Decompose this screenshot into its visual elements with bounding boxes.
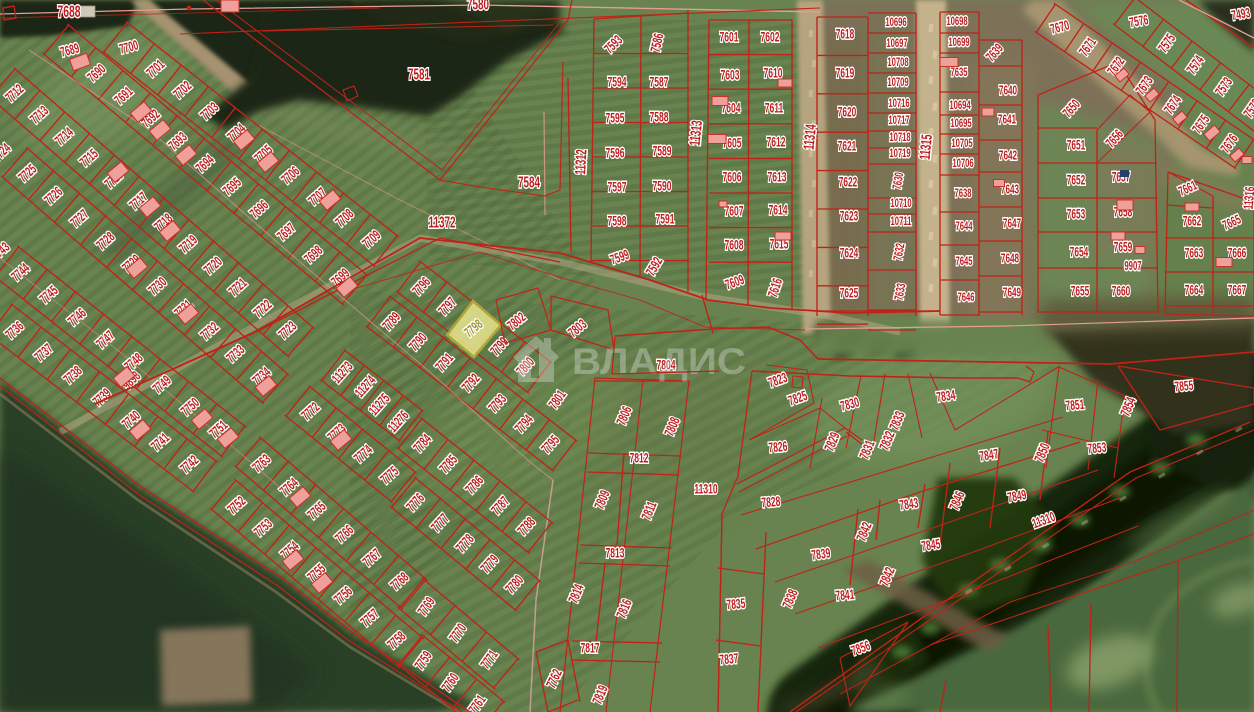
svg-text:7843: 7843 [899, 497, 920, 514]
svg-text:7839: 7839 [811, 547, 832, 564]
svg-text:7667: 7667 [1228, 284, 1246, 298]
svg-text:7855: 7855 [1174, 379, 1195, 395]
svg-text:10719: 10719 [889, 147, 911, 160]
svg-text:7623: 7623 [840, 210, 858, 224]
svg-text:7614: 7614 [768, 204, 787, 218]
svg-text:7641: 7641 [998, 113, 1016, 127]
svg-text:7660: 7660 [1112, 285, 1130, 299]
svg-text:10717: 10717 [888, 114, 910, 127]
svg-text:7847: 7847 [979, 448, 1000, 465]
svg-text:7646: 7646 [957, 291, 974, 304]
svg-text:7584: 7584 [518, 173, 540, 191]
svg-text:7835: 7835 [726, 597, 747, 613]
svg-text:7662: 7662 [1183, 215, 1201, 229]
svg-text:7653: 7653 [1067, 208, 1085, 222]
svg-text:10716: 10716 [888, 97, 910, 110]
svg-text:7826: 7826 [768, 440, 788, 456]
svg-text:10718: 10718 [889, 131, 911, 144]
svg-text:10694: 10694 [949, 99, 971, 112]
svg-text:7659: 7659 [1114, 241, 1132, 255]
svg-text:7638: 7638 [954, 187, 971, 200]
svg-text:7594: 7594 [607, 76, 626, 90]
svg-text:7845: 7845 [921, 537, 942, 554]
svg-text:10698: 10698 [946, 15, 968, 28]
svg-text:7652: 7652 [1067, 174, 1085, 188]
svg-text:7654: 7654 [1070, 246, 1089, 260]
svg-text:10708: 10708 [887, 56, 909, 69]
svg-text:10696: 10696 [885, 16, 907, 29]
svg-text:7611: 7611 [765, 102, 784, 116]
svg-text:7619: 7619 [836, 67, 854, 81]
svg-text:7651: 7651 [1067, 139, 1085, 153]
svg-text:11315: 11315 [916, 133, 935, 160]
svg-text:7851: 7851 [1065, 398, 1086, 414]
svg-text:7590: 7590 [652, 180, 671, 194]
svg-text:7612: 7612 [766, 136, 785, 150]
svg-text:7624: 7624 [840, 247, 859, 261]
svg-text:7621: 7621 [838, 140, 856, 154]
svg-text:10710: 10710 [890, 197, 912, 210]
svg-text:7587: 7587 [649, 76, 668, 90]
svg-text:7853: 7853 [1087, 441, 1107, 457]
svg-text:7601: 7601 [719, 31, 738, 45]
svg-text:7812: 7812 [629, 452, 648, 466]
svg-text:7591: 7591 [655, 213, 674, 227]
svg-text:7598: 7598 [607, 215, 626, 229]
svg-text:7648: 7648 [1001, 252, 1019, 266]
svg-text:7618: 7618 [836, 28, 854, 42]
svg-text:ВЛАДИС: ВЛАДИС [572, 341, 746, 382]
svg-text:7817: 7817 [580, 642, 599, 656]
svg-text:9907: 9907 [1124, 260, 1141, 273]
svg-text:10711: 10711 [891, 215, 912, 228]
svg-text:7625: 7625 [840, 287, 858, 301]
svg-text:10705: 10705 [951, 137, 973, 150]
svg-text:7663: 7663 [1185, 247, 1203, 261]
svg-text:7642: 7642 [999, 149, 1017, 163]
svg-text:7688: 7688 [57, 1, 80, 20]
svg-text:7841: 7841 [835, 588, 856, 604]
svg-text:7640: 7640 [999, 84, 1017, 98]
svg-text:11314: 11314 [800, 123, 819, 150]
svg-text:7595: 7595 [605, 112, 624, 126]
svg-text:7644: 7644 [955, 220, 972, 233]
svg-text:10709: 10709 [887, 76, 909, 89]
svg-text:11316: 11316 [1242, 186, 1254, 210]
svg-text:7620: 7620 [838, 106, 856, 120]
svg-text:11372: 11372 [428, 213, 455, 231]
svg-text:10706: 10706 [952, 157, 974, 170]
svg-text:11312: 11312 [572, 149, 590, 175]
svg-text:7608: 7608 [724, 239, 743, 253]
svg-text:7813: 7813 [605, 547, 624, 561]
svg-text:7596: 7596 [605, 147, 624, 161]
svg-text:10697: 10697 [886, 37, 908, 50]
svg-text:10699: 10699 [948, 36, 970, 49]
svg-text:7580: 7580 [467, 0, 489, 13]
svg-text:7606: 7606 [722, 171, 741, 185]
svg-text:10695: 10695 [950, 117, 972, 130]
svg-text:7828: 7828 [761, 495, 782, 511]
svg-text:7613: 7613 [767, 171, 786, 185]
svg-text:11310: 11310 [694, 483, 717, 497]
svg-text:7645: 7645 [955, 255, 972, 268]
svg-text:7664: 7664 [1185, 284, 1204, 298]
svg-text:7581: 7581 [408, 65, 430, 83]
svg-text:7655: 7655 [1071, 285, 1089, 299]
svg-text:7837: 7837 [719, 652, 739, 668]
svg-text:7834: 7834 [936, 388, 957, 405]
svg-text:11313: 11313 [686, 119, 705, 146]
svg-text:7649: 7649 [1003, 286, 1021, 300]
svg-text:7589: 7589 [652, 145, 671, 159]
svg-text:7622: 7622 [839, 176, 857, 190]
svg-text:7597: 7597 [607, 181, 626, 195]
svg-text:7602: 7602 [760, 31, 779, 45]
svg-text:7588: 7588 [649, 111, 668, 125]
svg-text:7603: 7603 [720, 69, 739, 83]
svg-text:7635: 7635 [950, 66, 967, 79]
svg-text:7647: 7647 [1003, 217, 1021, 231]
